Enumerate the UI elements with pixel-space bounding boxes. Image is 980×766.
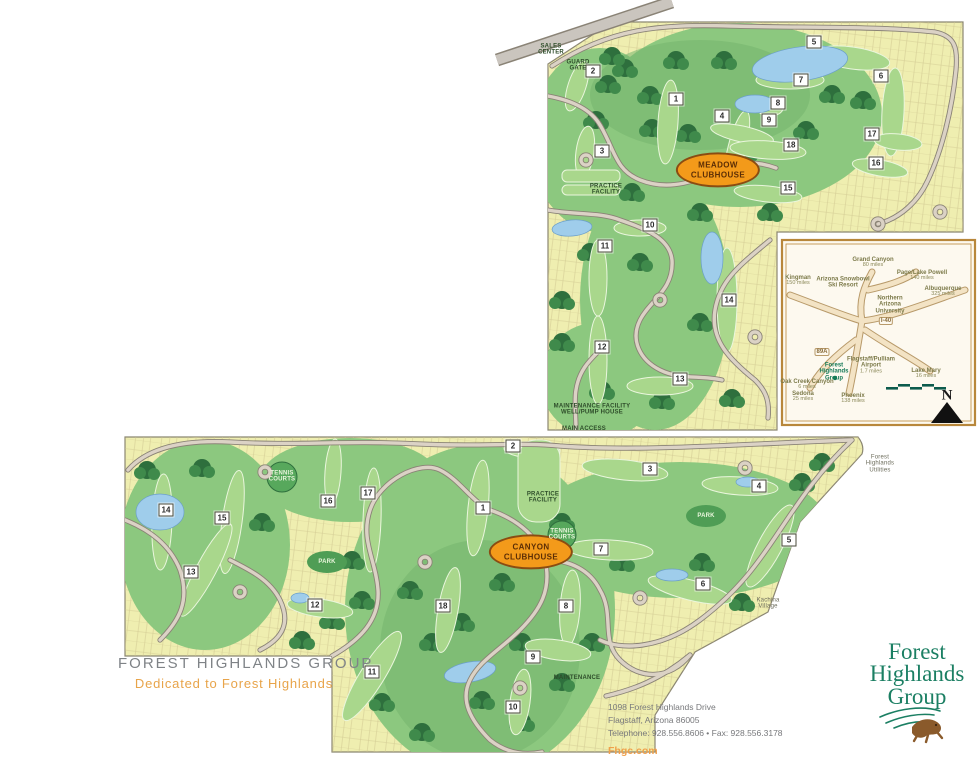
logo-line2: Highlands bbox=[856, 663, 978, 685]
address-line2: Flagstaff, Arizona 86005 bbox=[608, 714, 783, 727]
regional-inset-map bbox=[782, 240, 975, 425]
forest-highlands-marker bbox=[833, 376, 837, 380]
group-title: FOREST HIGHLANDS GROUP bbox=[118, 655, 333, 672]
community-map-page: MEADOW CLUBHOUSE CANYON CLUBHOUSE N 1234… bbox=[0, 0, 980, 766]
logo-block: Forest Highlands Group bbox=[856, 641, 978, 708]
logo-line1: Forest bbox=[856, 641, 978, 663]
map-artwork bbox=[0, 0, 980, 766]
website-link[interactable]: Fhgc.com bbox=[608, 743, 783, 759]
branding-block: FOREST HIGHLANDS GROUP Dedicated to Fore… bbox=[118, 655, 333, 691]
logo-line3: Group bbox=[856, 686, 978, 708]
group-tagline: Dedicated to Forest Highlands bbox=[118, 676, 333, 691]
address-block: 1098 Forest Highlands Drive Flagstaff, A… bbox=[608, 701, 783, 759]
running-gopher-icon bbox=[880, 708, 942, 742]
contact-line: Telephone: 928.556.8606 • Fax: 928.556.3… bbox=[608, 727, 783, 740]
address-line1: 1098 Forest Highlands Drive bbox=[608, 701, 783, 714]
